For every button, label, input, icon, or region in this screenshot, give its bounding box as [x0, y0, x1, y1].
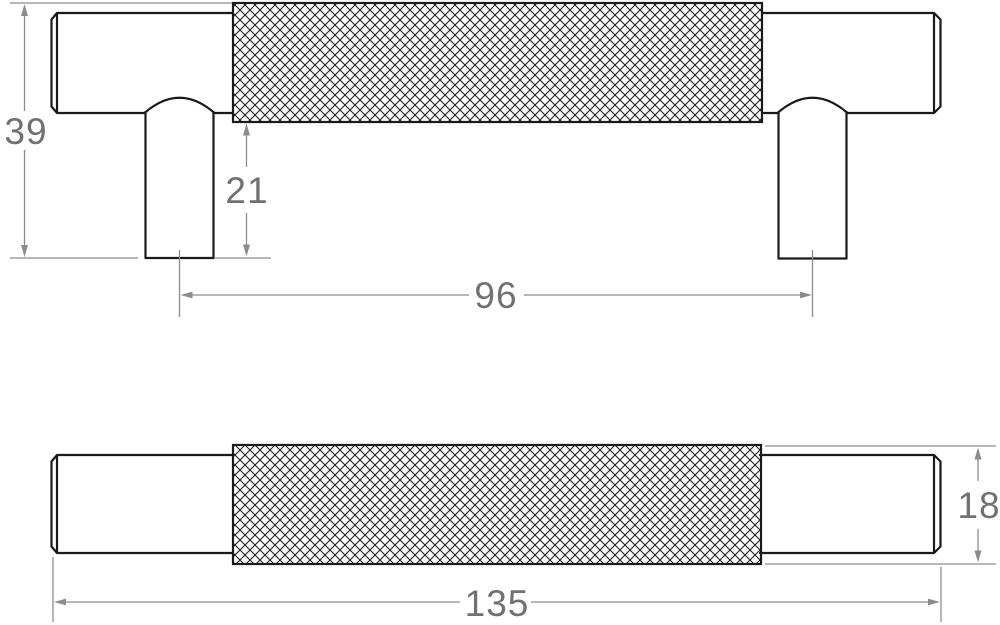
left-post-outline [146, 112, 214, 258]
dimension-value-39: 39 [4, 111, 47, 152]
bar-right-section-outline [760, 455, 941, 553]
dimension-value-21: 21 [225, 170, 268, 211]
arrowhead-right [800, 292, 812, 299]
arrowhead-right [928, 599, 940, 606]
technical-drawing-page: 39 21 96 [0, 0, 1000, 625]
arrowhead-up [21, 4, 28, 16]
bar-left-section-outline [52, 13, 234, 113]
dimension-value-96: 96 [474, 275, 517, 316]
bar-right-section-outline [762, 13, 941, 113]
arrowhead-up [975, 448, 982, 460]
right-post-fillet-arc [778, 98, 848, 113]
right-post-outline [779, 112, 847, 259]
arrowhead-up [243, 124, 250, 136]
dimension-value-135: 135 [465, 583, 530, 624]
arrowhead-down [243, 245, 250, 257]
bar-left-section-outline [52, 455, 234, 553]
front-elevation-view: 39 21 96 [4, 3, 940, 317]
dimension-fixing-centres: 96 [180, 250, 813, 317]
handle-dimension-drawing: 39 21 96 [0, 0, 1000, 625]
left-post-fillet-arc [145, 98, 215, 113]
dimension-bar-diameter: 18 [765, 446, 1000, 564]
arrowhead-down [21, 245, 28, 257]
arrowhead-left [181, 292, 193, 299]
knurled-grip-section [233, 445, 761, 564]
dimension-overall-length: 135 [53, 557, 941, 624]
dimension-overall-height: 39 [4, 3, 232, 258]
dimension-value-18: 18 [957, 485, 1000, 526]
knurled-grip-section [233, 3, 762, 122]
arrowhead-left [54, 599, 66, 606]
arrowhead-down [975, 551, 982, 563]
plan-view: 18 135 [52, 445, 1000, 624]
dimension-post-projection: 21 [215, 124, 271, 259]
